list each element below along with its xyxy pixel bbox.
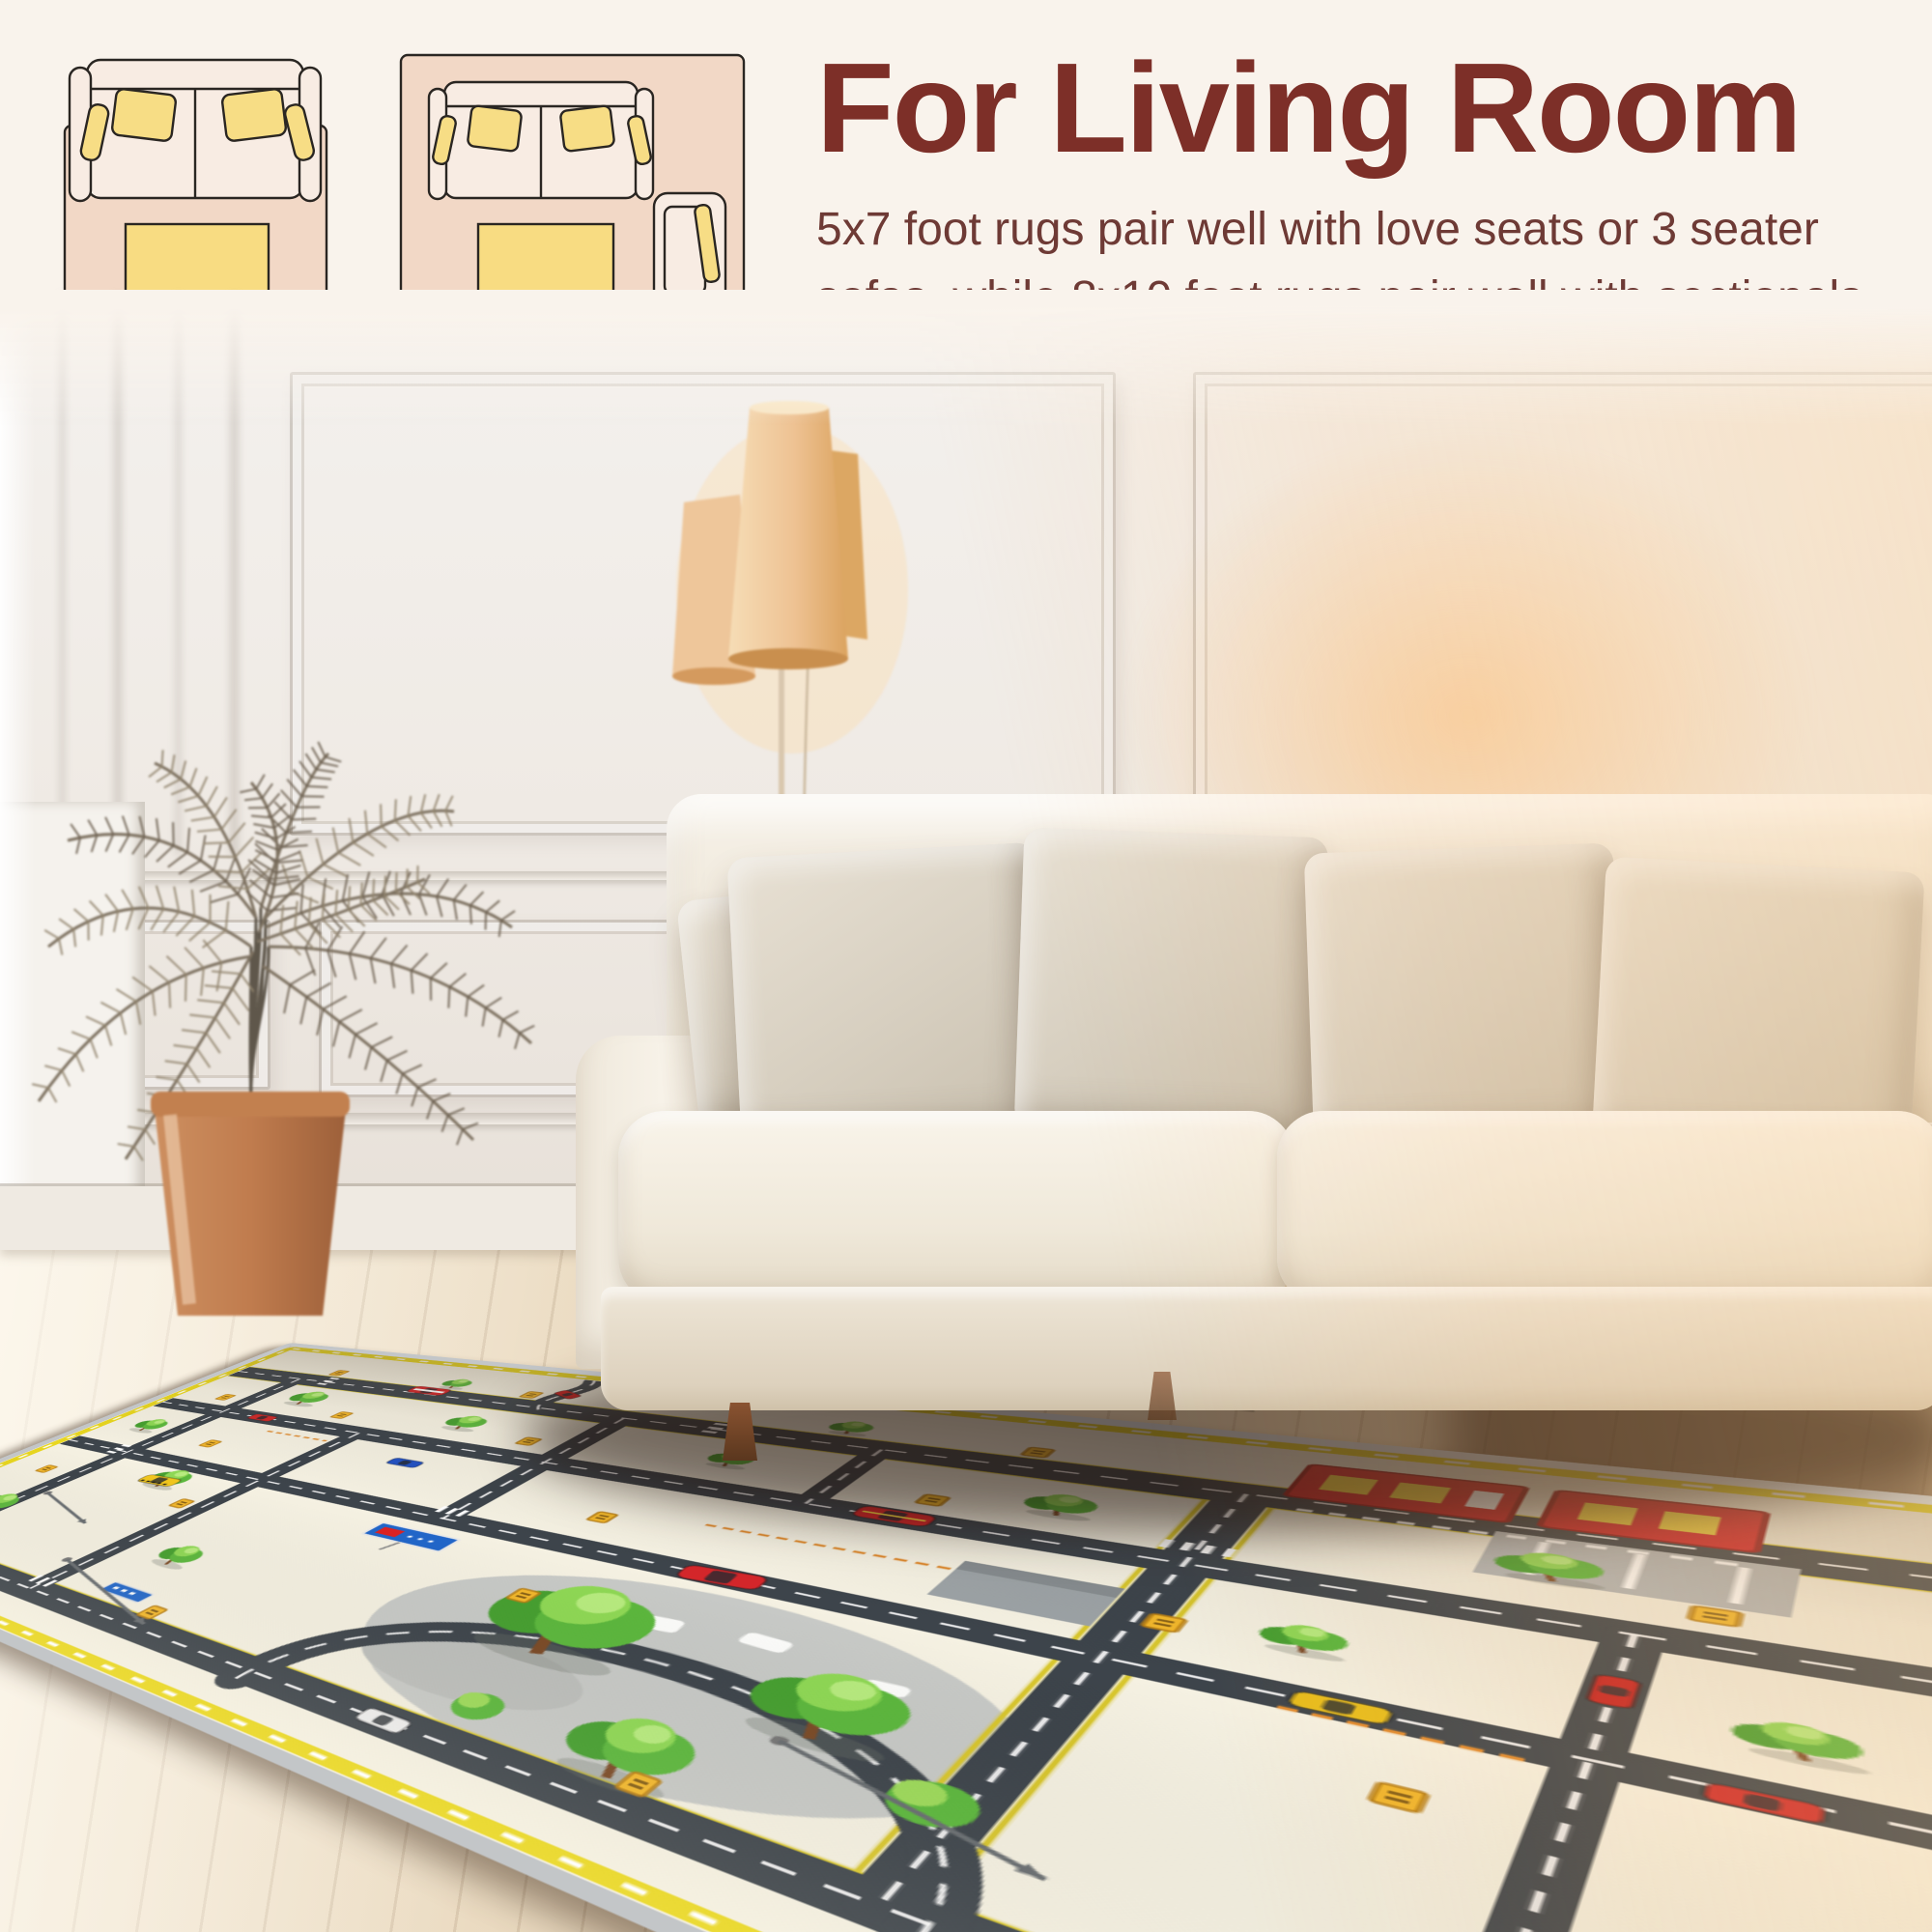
palm-leaflet xyxy=(434,794,440,810)
palm-leaflet xyxy=(391,945,408,963)
palm-leaflet xyxy=(120,835,129,852)
palm-leaflet xyxy=(503,1011,519,1020)
palm-leaflet xyxy=(468,985,484,997)
palm-leaflet xyxy=(434,811,442,827)
palm-leaflet xyxy=(433,1094,450,1101)
palm-leaflet xyxy=(197,1000,224,1003)
palm-leaflet xyxy=(277,852,300,861)
palm-leaflet xyxy=(44,1065,62,1070)
palm-leaflet xyxy=(210,895,238,903)
palm-leaflet xyxy=(122,890,133,909)
palm-leaflet xyxy=(174,887,179,912)
palm-leaflet xyxy=(105,1026,111,1046)
palm-leaflet xyxy=(127,909,133,930)
palm-leaflet xyxy=(164,780,181,788)
palm-leaflet xyxy=(58,1048,76,1054)
palm-leaflet xyxy=(156,818,159,840)
palm-leaflet xyxy=(207,786,217,806)
palm-leaflet xyxy=(221,810,236,829)
palm-leaflet xyxy=(59,919,73,929)
palm-leaflet xyxy=(312,748,321,763)
palm-leaflet xyxy=(178,796,198,802)
palm-leaflet xyxy=(335,890,337,914)
palm-leaflet xyxy=(149,767,162,778)
page-title: For Living Room xyxy=(816,35,1801,181)
palm-leaflet xyxy=(48,1088,56,1102)
palm-leaflet xyxy=(166,956,185,975)
palm-leaflet xyxy=(256,775,265,789)
palm-leaflet xyxy=(281,790,297,808)
palm-leaflet xyxy=(470,905,471,924)
palm-leaflet xyxy=(309,923,327,943)
palm-leaflet xyxy=(321,762,338,766)
palm-leaflet xyxy=(165,1061,187,1064)
palm-leaflet xyxy=(212,971,241,974)
palm-leaflet xyxy=(448,1108,465,1115)
palm-leaflet xyxy=(365,810,367,834)
palm-leaflet xyxy=(191,817,214,821)
palm-leaflet xyxy=(412,971,413,994)
palm-leaflet xyxy=(445,810,451,826)
photo-top-fade xyxy=(0,290,1932,425)
palm-leaflet xyxy=(333,828,339,853)
palm-leaflet xyxy=(391,964,394,988)
palm-leaflet xyxy=(286,832,312,833)
palm-leaflet xyxy=(421,794,426,812)
palm-leaflet xyxy=(189,870,213,882)
palm-leaflet xyxy=(384,875,385,895)
palm-leaflet xyxy=(520,1026,535,1034)
palm-leaflet xyxy=(187,828,189,852)
palm-leaflet xyxy=(387,1051,408,1061)
palm-leaflet xyxy=(203,930,226,948)
palm-leaflet xyxy=(90,901,103,916)
palm-leaflet xyxy=(353,842,373,856)
palm-leaflet xyxy=(114,911,118,931)
palm-leaflet xyxy=(318,742,325,757)
palm-leaflet xyxy=(418,1079,437,1087)
palm-leaflet xyxy=(454,885,467,900)
palm-leaflet xyxy=(419,895,427,916)
terracotta-pot xyxy=(151,1092,350,1316)
palm-leaflet xyxy=(317,1009,323,1036)
palm-leaflet xyxy=(395,799,396,820)
palm-leaflet xyxy=(300,997,306,1024)
palm-leaflet xyxy=(361,883,362,905)
palm-leaflet xyxy=(408,796,411,816)
palm-leaflet xyxy=(197,1048,211,1067)
throw-pillow xyxy=(1304,843,1623,1149)
palm-leaflet xyxy=(396,1074,402,1094)
palm-leaflet xyxy=(179,861,201,874)
palm-leaflet xyxy=(350,953,356,980)
palm-leaflet xyxy=(116,989,136,1002)
palm-leaflet xyxy=(335,914,353,931)
palm-leaflet xyxy=(203,940,221,962)
palm-leaflet xyxy=(215,1018,230,1039)
palm-leaflet xyxy=(407,868,408,886)
palm-leaflet xyxy=(76,838,80,854)
palm-leaflet xyxy=(470,892,484,905)
palm-leaflet xyxy=(189,1014,214,1017)
palm-leaflet xyxy=(466,997,468,1017)
palm-leaflet xyxy=(262,783,272,798)
palm-leaflet xyxy=(156,845,174,862)
palm-leaflet xyxy=(326,757,342,762)
palm-leaflet xyxy=(88,820,97,836)
palm-leaflet xyxy=(136,1002,140,1025)
palm-leaflet xyxy=(236,838,254,857)
palm-leaflet xyxy=(349,886,351,909)
palm-leaflet xyxy=(229,823,245,842)
palm-leaflet xyxy=(197,829,221,831)
palm-leaflet xyxy=(427,1101,433,1120)
palm-leaflet xyxy=(182,1030,206,1033)
palm-leaflet xyxy=(395,820,411,835)
palm-leaflet xyxy=(486,912,487,929)
palm-leaflet xyxy=(92,836,98,853)
palm-leaflet xyxy=(139,816,144,837)
palm-leaflet xyxy=(176,916,194,935)
palm-leaflet xyxy=(76,1054,84,1071)
palm-leaflet xyxy=(381,804,382,826)
palm-leaflet xyxy=(100,1003,120,1013)
palm-leaflet xyxy=(171,787,189,795)
palm-leaflet xyxy=(134,1147,143,1161)
palm-leaflet xyxy=(403,1065,422,1073)
diagram-5x7-rug xyxy=(65,60,327,325)
palm-leaflet xyxy=(349,910,365,926)
palm-leaflet xyxy=(173,822,174,845)
palm-leaflet xyxy=(350,1035,355,1059)
palm-frond xyxy=(261,753,328,908)
palm-leaflet xyxy=(486,900,499,912)
palm-leaflet xyxy=(515,1033,520,1049)
palm-leaflet xyxy=(156,1077,178,1080)
palm-leaflet xyxy=(74,909,89,922)
palm-leaflet xyxy=(172,754,175,772)
palm-leaflet xyxy=(463,1123,478,1129)
palm-leaflet xyxy=(323,996,346,1009)
palm-leaflet xyxy=(32,1084,48,1088)
palm-leaflet xyxy=(280,934,300,955)
palm-leaflet xyxy=(327,926,342,951)
palm-leaflet xyxy=(445,796,453,810)
palm-leaflet xyxy=(305,753,316,769)
palm-leaflet xyxy=(448,987,449,1009)
palm-leaflet xyxy=(189,768,196,787)
palm-leaflet xyxy=(412,1088,417,1107)
palm-leaflet xyxy=(292,819,316,820)
palm-leaflet xyxy=(338,853,360,866)
diagram-loveseat xyxy=(70,60,321,201)
palm-leaflet xyxy=(181,761,185,780)
body-line-1: 5x7 foot rugs pair well with love seats … xyxy=(816,195,1876,264)
palm-leaflet xyxy=(277,839,298,850)
palm-leaflet xyxy=(123,816,129,836)
palm-leaflet xyxy=(295,901,297,929)
palm-leaflet xyxy=(121,1013,126,1035)
palm-leaflet xyxy=(276,866,300,873)
palm-leaflet xyxy=(44,930,59,939)
palm-leaflet xyxy=(421,812,432,828)
palm-leaflet xyxy=(373,879,374,900)
palm-leaflet xyxy=(153,991,156,1015)
throw-pillow xyxy=(726,842,1050,1148)
palm-leaflet xyxy=(437,896,441,917)
palm-leaflet xyxy=(311,778,331,780)
palm-leaflet xyxy=(185,806,207,810)
palm-leaflet xyxy=(371,938,386,958)
palm-leaflet xyxy=(333,1022,339,1047)
dried-palm-plant xyxy=(10,724,570,1343)
palm-leaflet xyxy=(382,826,399,840)
palm-leaflet xyxy=(324,865,348,877)
palm-leaflet xyxy=(187,1064,200,1082)
palm-leaflet xyxy=(118,1144,134,1147)
palm-leaflet xyxy=(294,770,307,786)
palm-leaflet xyxy=(201,968,204,996)
palm-leaflet xyxy=(226,901,229,930)
palm-leaflet xyxy=(226,855,236,881)
seat-cushion xyxy=(1277,1111,1932,1304)
palm-leaflet xyxy=(185,948,204,968)
palm-leaflet xyxy=(198,777,207,796)
palm-leaflet xyxy=(396,872,397,892)
palm-leaflet xyxy=(71,824,80,838)
palm-leaflet xyxy=(132,837,145,854)
palm-leaflet xyxy=(408,816,420,832)
palm-leaflet xyxy=(156,772,172,781)
palm-leaflet xyxy=(349,818,353,842)
palm-leaflet xyxy=(343,874,348,900)
palm-leaflet xyxy=(105,895,118,912)
product-infographic: 5x7 8x10 For Living Room 5x7 foot rugs p… xyxy=(0,0,1932,1932)
palm-leaflet xyxy=(306,983,330,997)
palm-leaflet xyxy=(91,1039,98,1058)
palm-leaflet xyxy=(290,970,315,984)
palm-leaflet xyxy=(457,1129,463,1145)
palm-leaflet xyxy=(86,1016,105,1025)
palm-leaflet xyxy=(201,836,206,861)
palm-leaflet xyxy=(501,911,515,921)
palm-leaflet xyxy=(367,834,386,847)
palm-leaflet xyxy=(224,1003,240,1025)
palm-leaflet xyxy=(162,750,163,766)
palm-leaflet xyxy=(299,761,311,778)
palm-leaflet xyxy=(163,912,179,932)
palm-leaflet xyxy=(206,1033,220,1053)
palm-leaflet xyxy=(454,900,457,921)
palm-leaflet xyxy=(233,988,249,1010)
palm-leaflet xyxy=(169,982,170,1009)
palm-leaflet xyxy=(62,1070,70,1087)
palm-leaflet xyxy=(300,884,302,913)
palm-leaflet xyxy=(138,908,148,929)
palm-leaflet xyxy=(192,890,195,917)
palm-leaflet xyxy=(327,951,335,978)
palm-leaflet xyxy=(442,1115,448,1131)
palm-leaflet xyxy=(128,1126,145,1129)
palm-leaflet xyxy=(59,939,62,955)
palm-leaflet xyxy=(287,780,301,797)
palm-leaflet xyxy=(284,984,290,1013)
palm-leaflet xyxy=(73,929,75,947)
diagram-sofa xyxy=(429,82,653,199)
palm-leaflet xyxy=(323,919,340,937)
palm-leaflet xyxy=(371,958,376,983)
seat-cushion xyxy=(618,1111,1294,1304)
palm-leaflet xyxy=(71,1032,90,1039)
palm-leaflet xyxy=(350,931,365,953)
palm-leaflet xyxy=(382,895,393,916)
palm-leaflet xyxy=(149,966,169,982)
palm-leaflet xyxy=(306,786,327,787)
palm-leaflet xyxy=(185,975,186,1002)
palm-leaflet xyxy=(299,850,308,877)
palm-leaflet xyxy=(189,923,211,941)
palm-leaflet xyxy=(449,974,466,987)
palm-leaflet xyxy=(168,852,187,867)
palm-leaflet xyxy=(483,1008,486,1026)
palm-leaflet xyxy=(309,897,311,924)
palm-leaflet xyxy=(499,921,501,937)
palm-leaflet xyxy=(106,835,114,852)
palm-leaflet xyxy=(105,817,113,835)
palm-leaflet xyxy=(240,789,256,793)
palm-leaflet xyxy=(156,886,164,909)
palm-leaflet xyxy=(308,877,333,889)
palm-leaflet xyxy=(486,998,502,1009)
palm-leaflet xyxy=(145,840,159,857)
palm-leaflet xyxy=(132,977,153,991)
palm-leaflet xyxy=(145,1129,155,1145)
palm-leaflet xyxy=(431,963,447,979)
palm-leaflet xyxy=(499,1020,503,1037)
palm-leaflet xyxy=(412,953,428,970)
palm-leaflet xyxy=(203,842,229,843)
palm-leaflet xyxy=(371,1037,392,1047)
palm-leaflet xyxy=(255,843,275,863)
palm-leaflet xyxy=(174,1045,197,1048)
palm-leaflet xyxy=(365,1047,371,1069)
palm-leaflet xyxy=(381,1061,386,1082)
palm-leaflet xyxy=(244,798,262,800)
palm-leaflet xyxy=(139,887,149,908)
palm-leaflet xyxy=(355,1023,378,1035)
palm-leaflet xyxy=(253,824,274,828)
sofa-base xyxy=(601,1287,1932,1410)
palm-leaflet xyxy=(151,909,163,930)
palm-leaflet xyxy=(362,872,369,897)
palm-leaflet xyxy=(316,838,323,865)
palm-leaflet xyxy=(339,1009,361,1022)
throw-pillow xyxy=(1014,828,1329,1138)
palm-leaflet xyxy=(401,872,411,894)
palm-leaflet xyxy=(101,916,103,936)
palm-leaflet xyxy=(437,879,448,896)
palm-leaflet xyxy=(214,797,227,816)
palm-leaflet xyxy=(316,770,334,773)
